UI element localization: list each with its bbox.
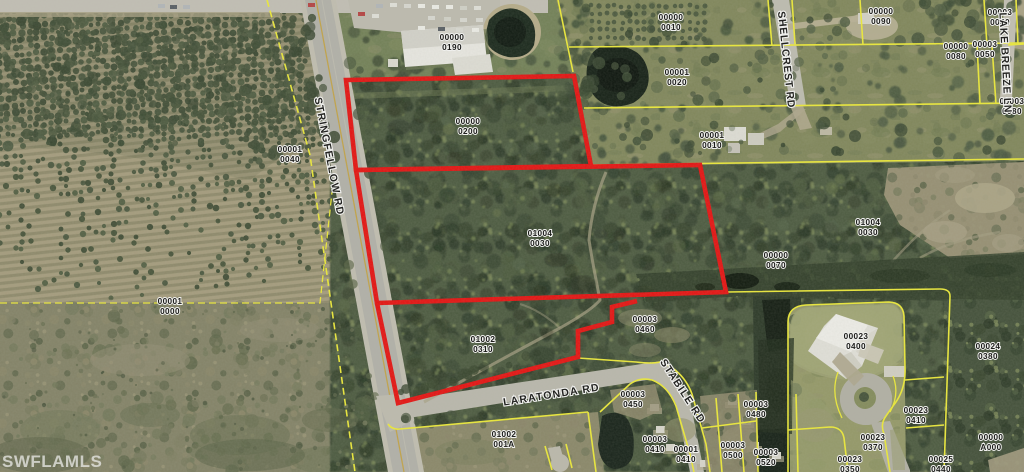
svg-text:SWFLAMLS: SWFLAMLS	[2, 452, 102, 471]
